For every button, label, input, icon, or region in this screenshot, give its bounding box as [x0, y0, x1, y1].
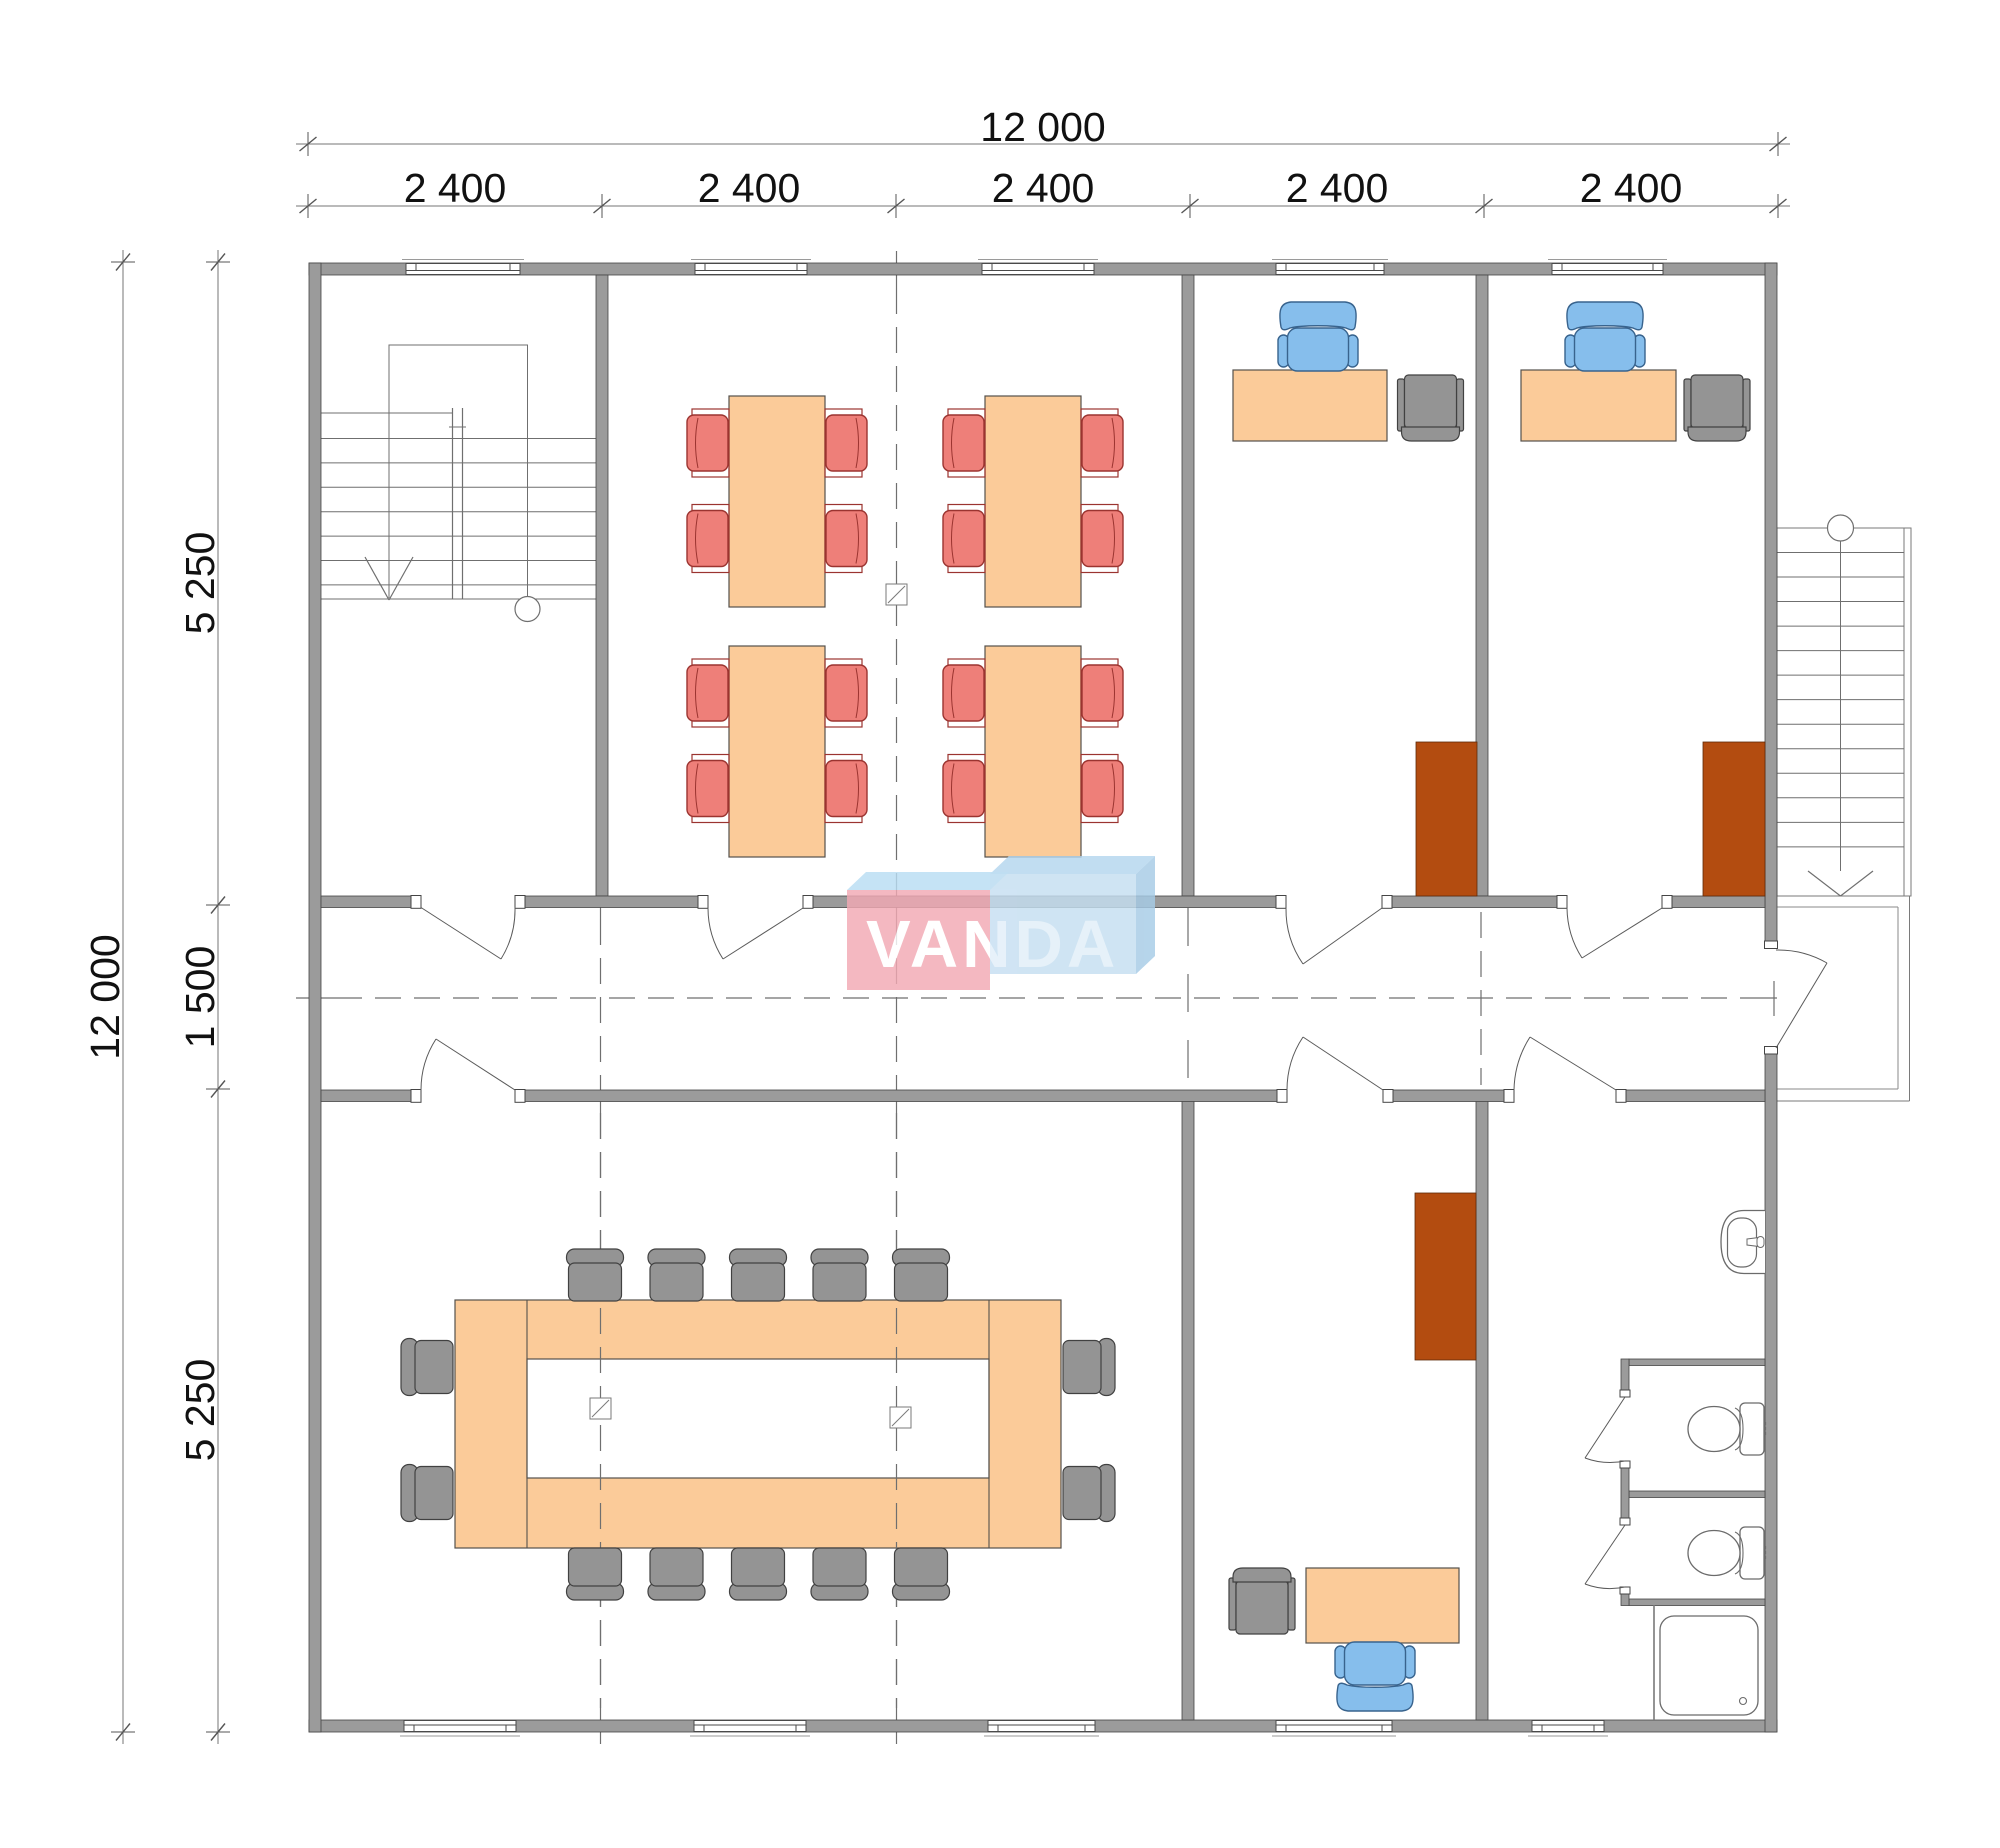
- svg-text:2 400: 2 400: [992, 165, 1095, 211]
- svg-text:2 400: 2 400: [1286, 165, 1389, 211]
- svg-text:5 250: 5 250: [177, 1359, 223, 1462]
- svg-text:2 400: 2 400: [698, 165, 801, 211]
- svg-text:1 500: 1 500: [177, 946, 223, 1049]
- svg-text:5 250: 5 250: [177, 532, 223, 635]
- svg-text:12 000: 12 000: [980, 104, 1105, 150]
- svg-text:12 000: 12 000: [82, 934, 128, 1059]
- svg-text:2 400: 2 400: [404, 165, 507, 211]
- svg-text:2 400: 2 400: [1580, 165, 1683, 211]
